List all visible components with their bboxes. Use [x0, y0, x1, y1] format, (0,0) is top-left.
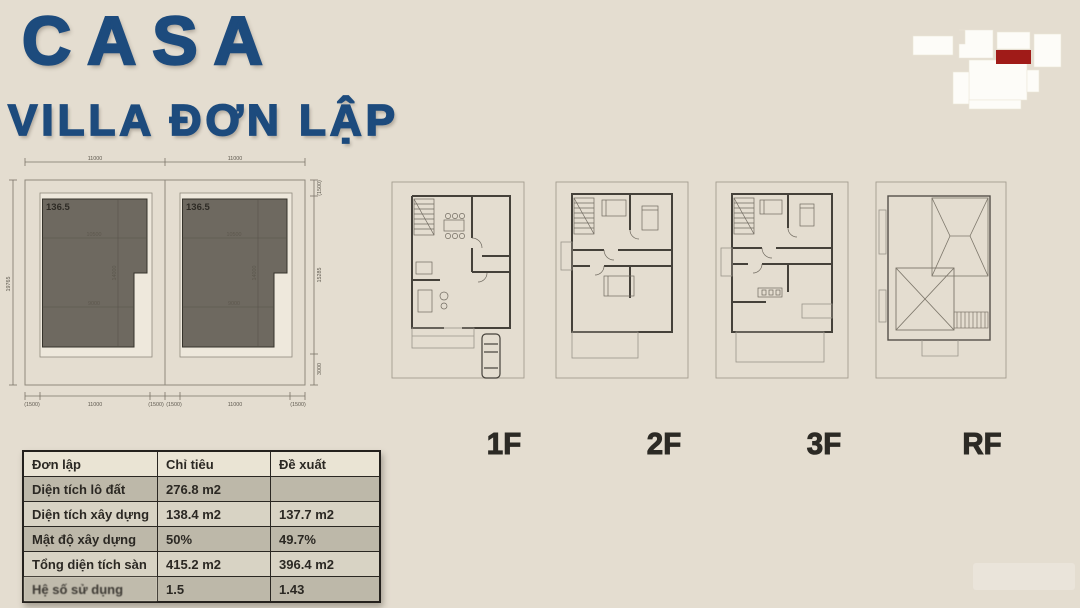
porch [412, 328, 474, 348]
walls [572, 194, 672, 332]
minimap-block [953, 72, 969, 104]
minimap-block [959, 30, 993, 58]
roof-edges [879, 210, 958, 356]
row-label: Diện tích xây dựng [23, 502, 158, 527]
door-arcs [472, 238, 487, 282]
floor-plan-3f [706, 172, 858, 387]
floor-plan-1f [382, 172, 534, 387]
dim-right-3: 3000 [317, 363, 323, 375]
family-table [758, 288, 782, 297]
minimap-block [1034, 34, 1061, 67]
row-proposed: 1.43 [271, 577, 381, 603]
table-row: Hệ số sử dụng 1.5 1.43 [23, 577, 380, 603]
stairs [414, 199, 434, 235]
floor-label-3f: 3F [786, 426, 862, 462]
minimap-block [969, 100, 1021, 109]
row-target: 415.2 m2 [158, 552, 271, 577]
floor-label-rf: RF [944, 426, 1020, 462]
dimension-line-top [25, 158, 305, 166]
site-plan: 11000 11000 19765 (1500) 15285 3000 [6, 156, 338, 408]
table-header-row: Đơn lập Chỉ tiêu Đề xuất [23, 451, 380, 477]
door-arcs [595, 230, 639, 275]
row-target: 1.5 [158, 577, 271, 603]
lot-dim-depth: 14000 [252, 266, 258, 281]
car [482, 334, 500, 378]
lot-dim-bottom: 9000 [88, 301, 100, 307]
lot-area-label: 136.5 [186, 202, 210, 213]
minimap-block [969, 60, 1027, 100]
minimap-block [997, 32, 1030, 49]
floor-plan-2f [546, 172, 698, 387]
table-row: Tổng diện tích sàn 415.2 m2 396.4 m2 [23, 552, 380, 577]
watermark-patch [973, 563, 1075, 590]
dim-bottom-1: (1500) [24, 402, 40, 408]
row-proposed: 49.7% [271, 527, 381, 552]
row-proposed: 137.7 m2 [271, 502, 381, 527]
row-target: 50% [158, 527, 271, 552]
spec-table: Đơn lập Chỉ tiêu Đề xuất Diện tích lô đấ… [22, 450, 381, 603]
lot-dim-depth: 14000 [112, 266, 118, 281]
building-footprint [183, 199, 288, 347]
lot-dim-bottom: 9000 [228, 301, 240, 307]
minimap-block [1027, 70, 1039, 92]
dim-bottom-6: (1500) [290, 402, 306, 408]
walls [732, 194, 832, 332]
row-target: 276.8 m2 [158, 477, 271, 502]
floor-label-1f: 1F [466, 426, 542, 462]
page-subtitle: VILLA ĐƠN LẬP [8, 96, 399, 146]
dim-bottom-5: 11000 [228, 402, 243, 408]
roof-hatch [954, 312, 988, 328]
building-footprint [43, 199, 148, 347]
dim-right-1: (1500) [317, 180, 323, 196]
sofa [416, 262, 448, 312]
dimension-line-bottom [25, 392, 305, 400]
dim-bottom-2: 11000 [88, 402, 103, 408]
dim-top-2: 11000 [228, 156, 243, 162]
hip-roof [932, 198, 988, 276]
skylight [896, 268, 954, 330]
lot-2: 136.5 10500 14000 9000 [180, 193, 292, 357]
floor-plan-rf [866, 172, 1014, 387]
table-row: Diện tích lô đất 276.8 m2 [23, 477, 380, 502]
minimap-block [913, 36, 953, 55]
row-proposed: 396.4 m2 [271, 552, 381, 577]
dim-left: 19765 [6, 277, 12, 292]
lot-dim-top: 10500 [87, 232, 102, 238]
stairs [734, 198, 754, 234]
row-label: Diện tích lô đất [23, 477, 158, 502]
page-title: CASA [22, 2, 279, 80]
lot-dim-top: 10500 [227, 232, 242, 238]
stairs [574, 198, 594, 234]
row-target: 138.4 m2 [158, 502, 271, 527]
header-chi-tieu: Chỉ tiêu [158, 451, 271, 477]
table-row: Mật độ xây dựng 50% 49.7% [23, 527, 380, 552]
lot-1: 136.5 10500 14000 9000 [40, 193, 152, 357]
door-arcs [753, 228, 797, 273]
floor-label-2f: 2F [626, 426, 702, 462]
dining-table [444, 213, 465, 238]
slide: CASA VILLA ĐƠN LẬP 11000 11000 [0, 0, 1080, 608]
lot-area-label: 136.5 [46, 202, 70, 213]
dim-right-2: 15285 [317, 268, 323, 283]
dim-bottom-4: (1500) [166, 402, 182, 408]
masterplan-minimap [895, 22, 1070, 117]
table-row: Diện tích xây dựng 138.4 m2 137.7 m2 [23, 502, 380, 527]
dim-bottom-3: (1500) [148, 402, 164, 408]
minimap-highlight-unit [996, 50, 1031, 64]
header-de-xuat: Đề xuất [271, 451, 381, 477]
dim-top-1: 11000 [88, 156, 103, 162]
row-label: Mật độ xây dựng [23, 527, 158, 552]
row-label: Tổng diện tích sàn [23, 552, 158, 577]
row-proposed [271, 477, 381, 502]
terrace [721, 248, 832, 362]
row-label: Hệ số sử dụng [23, 577, 158, 603]
header-don-lap: Đơn lập [23, 451, 158, 477]
